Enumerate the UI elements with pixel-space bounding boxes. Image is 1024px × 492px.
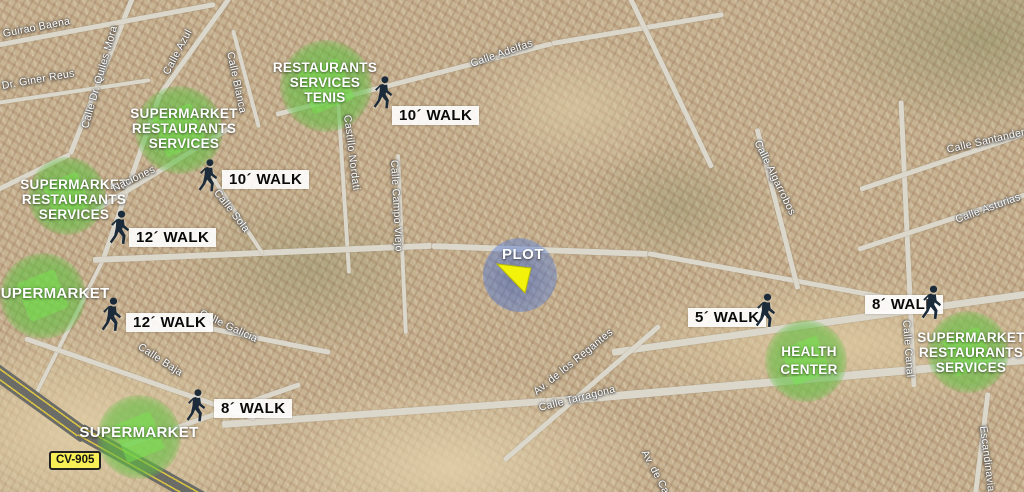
street-label-calle-campo-viejo: Calle Campo Viejo [388, 160, 405, 252]
zone-label-line: SERVICES [104, 136, 264, 151]
pedestrian-icon [753, 291, 779, 331]
zone-label-line: RESTAURANTS [104, 121, 264, 136]
street-label-escandinavia: Escandinavia [977, 425, 997, 492]
pedestrian-icon [107, 207, 133, 249]
pedestrian-icon [371, 74, 396, 112]
street-label-calle-santander: Calle Santander [946, 126, 1024, 156]
walk-time-label: 10´ WALK [392, 106, 479, 125]
pedestrian-icon [184, 386, 209, 426]
street-label-calle-asturias: Calle Asturias [954, 191, 1022, 226]
aerial-map: SUPERMARKET RESTAURANTS SERVICES RESTAUR… [0, 0, 1024, 492]
zone-label-line: HEALTH [734, 343, 884, 361]
walk-time-label: 12´ WALK [129, 228, 216, 247]
pedestrian-icon [99, 295, 125, 335]
pedestrian-icon [196, 157, 221, 195]
walk-time-label: 12´ WALK [126, 313, 213, 332]
zone-label-line: CENTER [734, 361, 884, 379]
street-label-av-de-ca: Av. de Ca [639, 448, 672, 492]
pedestrian-icon [919, 283, 945, 323]
walk-time-label: 8´ WALK [214, 399, 292, 418]
street-label-calle-baja: Calle Baja [136, 341, 185, 379]
amenity-zone-label: SUPERMARKET [64, 424, 214, 441]
zone-label-line: SUPERMARKET [896, 330, 1024, 345]
street-label-calle-adelfas: Calle Adelfas [469, 37, 535, 70]
plot-arrow-icon [494, 260, 534, 296]
zone-label-line: RESTAURANTS [0, 192, 149, 207]
amenity-zone-label: HEALTH CENTER [734, 343, 884, 379]
road-badge-cv905: CV-905 [49, 451, 101, 470]
zone-label-line: RESTAURANTS [255, 60, 395, 75]
walk-time-label: 10´ WALK [222, 170, 309, 189]
zone-label-line: SUPERMARKET [64, 424, 214, 441]
street-label-dr-giner-reus: Dr. Giner Reus [1, 67, 76, 92]
zone-label-line: RESTAURANTS [896, 345, 1024, 360]
